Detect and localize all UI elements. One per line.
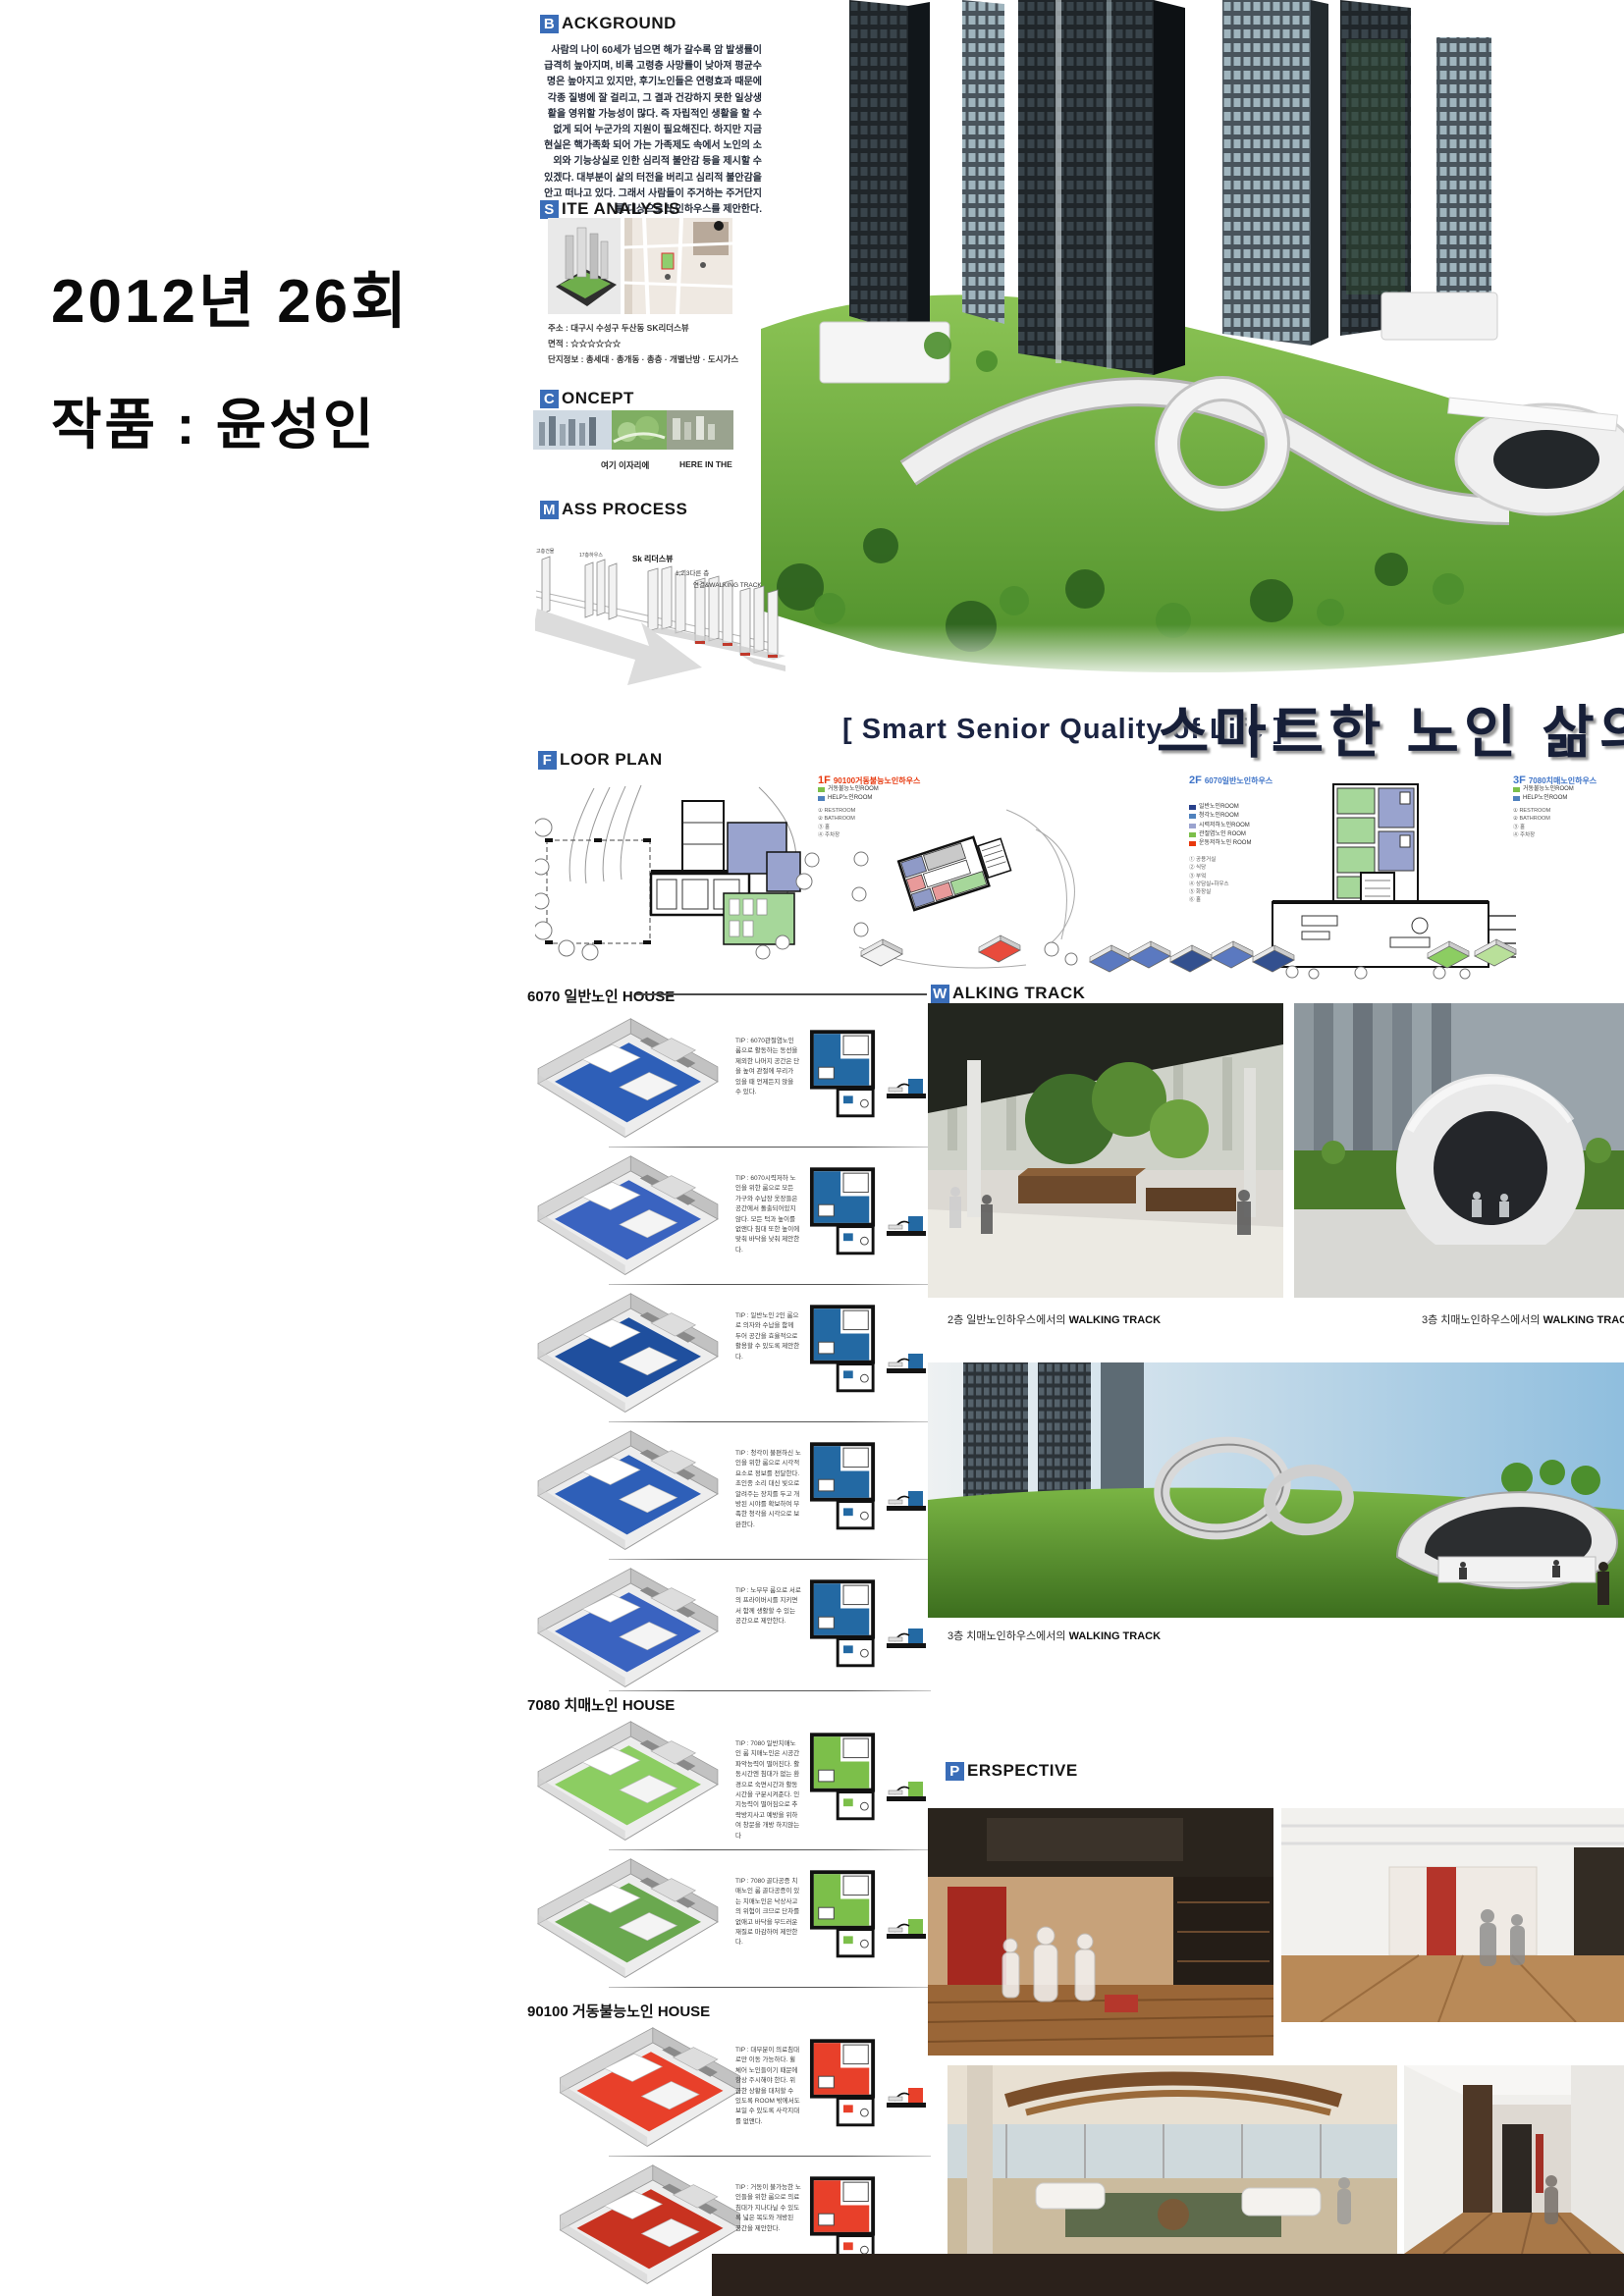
perspective-interior-1: [928, 1808, 1273, 2056]
legend-text: 일반노인ROOM: [1199, 803, 1239, 812]
mini-unit-model: [859, 938, 904, 968]
walking-track-courtyard-render: [928, 1003, 1283, 1298]
header-label: LOOR PLAN: [560, 750, 663, 770]
walking-track-tube-render: [1294, 1003, 1624, 1298]
bottom-footer-bar: [712, 2254, 1624, 2296]
legend-swatch: [1189, 832, 1196, 837]
legend-swatch: [1189, 805, 1196, 810]
legend-swatch: [818, 787, 825, 792]
unit-section-icon: [885, 1070, 928, 1101]
section-header-floor-plan: F LOOR PLAN: [538, 750, 663, 770]
note-line: ① 공용거실: [1189, 856, 1229, 864]
unit-row-6070-1: TIP : 6070관절염노인 룸으로 활동하는 동선을 제외한 나머지 공간은…: [527, 1013, 932, 1148]
walking-track-lawn-render: [928, 1362, 1624, 1618]
note-line: ③ 부엌: [1189, 873, 1229, 881]
header-initial-box: P: [946, 1762, 964, 1781]
mass-process-arrow: [535, 587, 704, 687]
note-line: ② 식당: [1189, 864, 1229, 872]
floor-name: 7080치매노인하우스: [1529, 776, 1597, 785]
mini-unit-model: [1251, 944, 1296, 974]
unit-3d-model: [527, 1565, 729, 1694]
poster-board: 2012년 26회 작품 : 윤성인: [0, 0, 1624, 2296]
mini-unit-model: [1127, 940, 1172, 970]
unit-section-icon: [885, 1482, 928, 1514]
floorplan-drawing-main: [535, 783, 820, 975]
legend-swatch: [818, 796, 825, 801]
unit-row-6070-5: TIP : 노부부 룸으로 서로의 프라이버시를 지키면서 함께 생활할 수 있…: [527, 1563, 932, 1698]
unit-3d-model: [527, 1015, 729, 1145]
section-header-concept: C ONCEPT: [540, 389, 634, 408]
note-line: ④ 상담실+하우스: [1189, 881, 1229, 888]
unit-tip-text: TIP : 거동이 불가능한 노인들을 위한 룸으로 의료침대가 지나다닐 수 …: [735, 2183, 801, 2234]
walking-track-caption-3: 3층 치매노인하우스에서의 WALKING TRACK: [947, 1628, 1161, 1643]
note-line: ② BATHROOM: [1513, 815, 1550, 823]
row-divider: [609, 2156, 931, 2157]
unit-tip-text: TIP : 6070시력저하 노인을 위한 룸으로 모든 가구와 수납장 옷장들…: [735, 1174, 801, 1255]
perspective-interior-2: [1281, 1808, 1624, 2022]
legend-text: 거동불능노인ROOM: [828, 785, 879, 794]
unit-row-6070-2: TIP : 6070시력저하 노인을 위한 룸으로 모든 가구와 수납장 옷장들…: [527, 1150, 932, 1286]
legend-text: 관절염노인 ROOM: [1199, 830, 1246, 839]
unit-3d-model: [527, 1152, 729, 1282]
unit-row-7080-2: TIP : 7080 골다공증 치매노인 룸 골다공증이 있는 치매노인은 낙상…: [527, 1853, 932, 1989]
unit-tip-text: TIP : 6070관절염노인 룸으로 활동하는 동선을 제외한 나머지 공간은…: [735, 1037, 801, 1097]
legend-text: HELP노인ROOM: [1523, 794, 1567, 803]
mass-label-4: 1,2,3다른 층: [676, 567, 709, 577]
unit-plan-thumb: [809, 1304, 878, 1396]
unit-section-icon: [885, 1345, 928, 1376]
unit-row-6070-4: TIP : 청각이 불편하신 노인을 위한 룸으로 시각적 요소로 정보를 전달…: [527, 1425, 932, 1561]
header-label: ITE ANALYSIS: [562, 199, 680, 219]
unit-row-6070-3: TIP : 일반노인 2인 룸으로 의자와 수납을 함께 두어 공간을 효율적으…: [527, 1288, 932, 1423]
row-divider: [609, 1147, 931, 1148]
unit-tip-text: TIP : 7080 골다공증 치매노인 룸 골다공증이 있는 치매노인은 낙상…: [735, 1877, 801, 1949]
mini-unit-model: [977, 934, 1022, 964]
site-address-line: 주소 : 대구시 수성구 두산동 SK리더스뷰: [548, 322, 689, 334]
header-initial-box: B: [540, 15, 559, 33]
mass-label-1: 고층건물: [536, 548, 554, 555]
concept-image-strip: [533, 410, 733, 450]
section-header-7080-house: 7080 치매노인 HOUSE: [527, 1694, 675, 1715]
author-title: 작품 : 윤성인: [51, 381, 376, 460]
row-divider: [609, 1849, 931, 1850]
floorplan-legend-2f: 일반노인ROOM 청각노인ROOM 시력저하노인ROOM 관절염노인 ROOM …: [1189, 803, 1251, 848]
note-line: ③ 홀: [1513, 824, 1550, 831]
unit-tip-text: TIP : 청각이 불편하신 노인을 위한 룸으로 시각적 요소로 정보를 전달…: [735, 1449, 801, 1530]
section-header-perspective: P ERSPECTIVE: [946, 1761, 1078, 1781]
section-header-walking-track: W ALKING TRACK: [931, 984, 1085, 1003]
unit-plan-thumb: [809, 1029, 878, 1121]
unit-3d-model: [527, 1718, 729, 1847]
concept-caption-ko: 여기 이자리에: [601, 459, 649, 471]
site-area-line: 면적 : ☆☆☆☆☆☆: [548, 338, 621, 349]
unit-section-icon: [885, 1620, 928, 1651]
header-label: ASS PROCESS: [562, 500, 687, 519]
perspective-corridor-render: [1404, 2065, 1624, 2254]
walking-track-caption-2: 3층 치매노인하우스에서의 WALKING TRACK: [1422, 1311, 1624, 1327]
floor-name: 90100거동불능노인하우스: [834, 776, 921, 785]
unit-plan-thumb: [809, 1166, 878, 1258]
mass-label-3: Sk 리더스뷰: [632, 554, 673, 564]
header-initial-box: W: [931, 985, 949, 1003]
unit-section-icon: [885, 1207, 928, 1239]
caption-text: 2층 일반노인하우스에서의: [947, 1314, 1066, 1326]
unit-tip-text: TIP : 일반노인 2인 룸으로 의자와 수납을 함께 두어 공간을 효율적으…: [735, 1311, 801, 1362]
legend-swatch: [1189, 824, 1196, 828]
unit-3d-model: [527, 1427, 729, 1557]
mini-unit-model: [1426, 940, 1471, 970]
unit-section-icon: [885, 1910, 928, 1942]
hero-render-graphic: [761, 0, 1624, 682]
caption-text: 3층 치매노인하우스에서의: [1422, 1314, 1541, 1326]
legend-swatch: [1189, 814, 1196, 819]
note-line: ⑥ 홀: [1189, 896, 1229, 904]
header-label: ERSPECTIVE: [967, 1761, 1078, 1781]
unit-tip-text: TIP : 7080 일반치매노인 룸 치매노인은 시공간 파악능력이 떨어진다…: [735, 1739, 801, 1842]
walking-track-caption-1: 2층 일반노인하우스에서의 WALKING TRACK: [947, 1311, 1161, 1327]
section-header-background: B ACKGROUND: [540, 14, 677, 33]
caption-text: 3층 치매노인하우스에서의: [947, 1630, 1066, 1642]
hero-render: [761, 0, 1624, 682]
legend-text: 청각노인ROOM: [1199, 812, 1239, 821]
note-line: ① RESTROOM: [1513, 807, 1550, 815]
section-rule: [636, 993, 927, 995]
legend-swatch: [1513, 796, 1520, 801]
caption-bold: WALKING TRACK: [1069, 1630, 1162, 1642]
caption-bold: WALKING TRACK: [1543, 1314, 1624, 1326]
header-label: ACKGROUND: [562, 14, 677, 33]
unit-section-icon: [885, 2079, 928, 2110]
floorplan-legend-3f: 거동불능노인ROOM HELP노인ROOM: [1513, 785, 1574, 804]
unit-section-icon: [885, 1773, 928, 1804]
row-divider: [609, 1690, 931, 1691]
unit-plan-thumb: [809, 1732, 878, 1824]
note-line: ⑤ 화장실: [1189, 888, 1229, 896]
row-divider: [609, 1559, 931, 1560]
unit-plan-thumb: [809, 1869, 878, 1961]
site-info-line: 단지정보 : 총세대 · 총개동 · 총층 · 개별난방 · 도시가스: [548, 353, 738, 365]
unit-3d-model: [527, 1290, 729, 1419]
section-header-mass-process: M ASS PROCESS: [540, 500, 687, 519]
section-header-90100-house: 90100 거동불능노인 HOUSE: [527, 2001, 710, 2021]
floorplan-notes-2f: ① 공용거실 ② 식당 ③ 부엌 ④ 상담실+하우스 ⑤ 화장실 ⑥ 홀: [1189, 856, 1229, 905]
row-divider: [609, 1987, 931, 1988]
unit-tip-text: TIP : 대부분이 의료침대로만 이동 가능하다. 휠체어 노인들이기 때문에…: [735, 2046, 801, 2127]
note-line: ④ 주차장: [1513, 831, 1550, 839]
perspective-lounge-render: [947, 2065, 1397, 2254]
header-label: ONCEPT: [562, 389, 634, 408]
unit-plan-thumb: [809, 1578, 878, 1671]
title-korean: 스마트한 노인 삶의 질: [1157, 686, 1624, 769]
unit-tip-text: TIP : 노부부 룸으로 서로의 프라이버시를 지키면서 함께 생활할 수 있…: [735, 1586, 801, 1628]
caption-bold: WALKING TRACK: [1069, 1314, 1162, 1326]
row-divider: [609, 1284, 931, 1285]
competition-year-title: 2012년 26회: [51, 251, 409, 340]
legend-swatch: [1189, 841, 1196, 846]
concept-caption-en: HERE IN THE: [679, 459, 732, 469]
section-header-6070-house: 6070 일반노인 HOUSE: [527, 986, 675, 1006]
unit-3d-model: [527, 1855, 729, 1985]
unit-plan-thumb: [809, 2038, 878, 2130]
floorplan-notes-3f: ① RESTROOM ② BATHROOM ③ 홀 ④ 주차장: [1513, 807, 1550, 839]
site-model-image: [548, 218, 621, 314]
header-label: ALKING TRACK: [952, 984, 1085, 1003]
unit-row-90100-1: TIP : 대부분이 의료침대로만 이동 가능하다. 휠체어 노인들이기 때문에…: [527, 2022, 932, 2158]
background-body-text: 사람의 나이 60세가 넘으면 해가 갈수록 암 발생률이 급격히 높아지며, …: [542, 43, 762, 218]
unit-row-7080-1: TIP : 7080 일반치매노인 룸 치매노인은 시공간 파악능력이 떨어진다…: [527, 1716, 932, 1851]
header-initial-box: M: [540, 501, 559, 519]
mini-unit-model: [1473, 938, 1518, 968]
site-map-image: [624, 218, 732, 314]
header-initial-box: S: [540, 200, 559, 219]
unit-plan-thumb: [809, 1441, 878, 1533]
floor-number: 2F: [1189, 774, 1202, 786]
legend-text: 거동불능노인ROOM: [1523, 785, 1574, 794]
mini-unit-model: [1210, 940, 1255, 970]
header-initial-box: C: [540, 390, 559, 408]
section-header-site-analysis: S ITE ANALYSIS: [540, 199, 680, 219]
mini-unit-model: [1168, 944, 1214, 974]
legend-swatch: [1513, 787, 1520, 792]
row-divider: [609, 1421, 931, 1422]
header-initial-box: F: [538, 751, 557, 770]
mass-label-2: 17층하우스: [579, 552, 603, 559]
